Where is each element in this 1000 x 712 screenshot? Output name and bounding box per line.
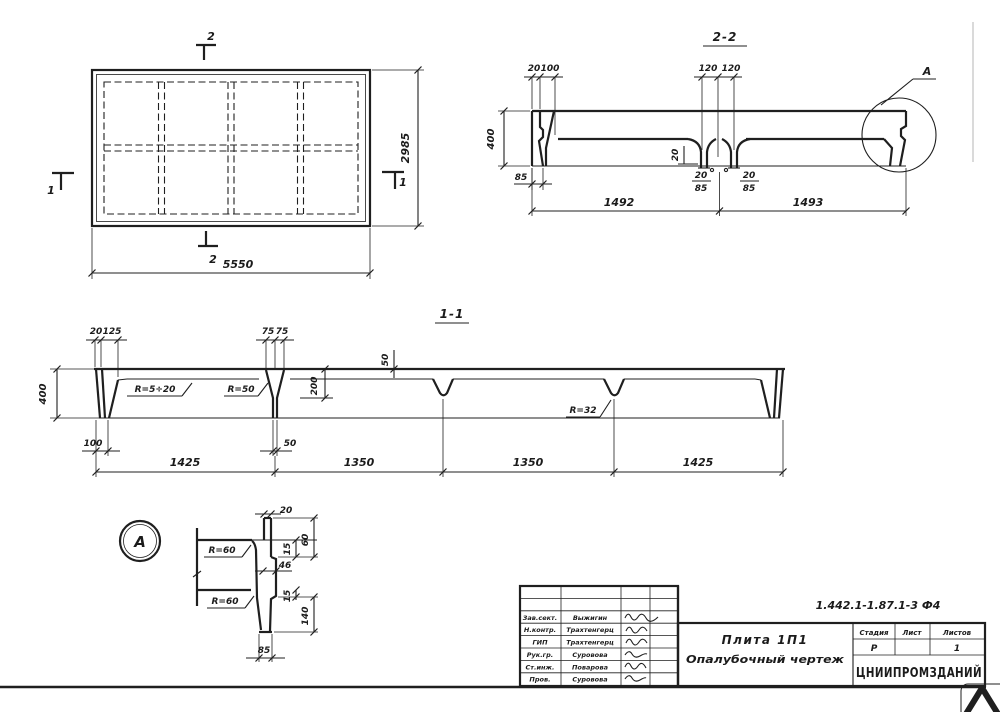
drawing-sheet: 2 2 1 1 5550: [0, 0, 1000, 712]
da-dim-85: 85: [246, 634, 285, 662]
da-dim-15a-label: 15: [283, 543, 293, 556]
signature-mark: [626, 627, 647, 633]
signature-mark: [625, 676, 646, 681]
s11-radius-1-label: R=5÷20: [135, 385, 176, 395]
organization-name: ЦНИИПРОМЗДАНИЙ: [856, 665, 982, 681]
signature-role: Ст.инж.: [526, 664, 555, 672]
s11-radius-1: R=5÷20: [127, 383, 192, 396]
stage-header: Стадия: [860, 629, 889, 637]
s11-dim-50-top: 50: [381, 350, 398, 378]
signature-mark: [625, 663, 646, 669]
signature-role: Пров.: [529, 676, 550, 684]
section-2-2-title: 2-2: [713, 30, 738, 44]
detail-a-callout: А: [862, 65, 936, 172]
s22-dim-note-20: 20: [671, 146, 698, 164]
s22-dim-20-label: 20: [528, 64, 541, 74]
s22-dims-20-100: 20 100: [524, 64, 563, 135]
document-code: 1.442.1-1.87.1-3 Ф4: [816, 599, 941, 612]
s22-dim-1492-label: 1492: [604, 196, 635, 209]
s11-dim-100-label: 100: [84, 439, 103, 449]
s22-foot-20-left: 20: [695, 171, 708, 181]
signature-name: Суровова: [572, 651, 607, 659]
s11-dim-50: 50: [260, 420, 296, 456]
detail-a-view: А 20 15: [120, 506, 318, 662]
signature-row: Рук.гр. Суровова: [527, 651, 647, 659]
da-dim-60-label: 60: [301, 534, 311, 547]
da-dim-20: 20: [255, 506, 292, 518]
s11-radius-3-label: R=32: [570, 406, 597, 416]
da-radius-1-label: R=60: [209, 546, 236, 556]
s11-dims-75-75: 75 75: [256, 327, 294, 368]
detail-a-label: А: [133, 533, 146, 551]
s11-dim-1350b-label: 1350: [513, 456, 544, 469]
s22-dims-1492-1493: 1492 1493: [529, 168, 910, 216]
da-dim-46-label: 46: [278, 561, 292, 571]
s22-foot-callout-left: 20 85: [692, 168, 714, 194]
s22-dim-400: 400: [486, 108, 530, 170]
da-dim-140-label: 140: [301, 607, 311, 626]
da-radius-2-label: R=60: [212, 597, 239, 607]
s11-dim-1425a-label: 1425: [170, 456, 201, 469]
section-2-2: 2-2 А 400: [486, 30, 936, 216]
s11-dim-400-label: 400: [38, 384, 49, 406]
s11-dim-50-top-label: 50: [381, 354, 391, 367]
signature-name: Трахтенгерц: [566, 626, 614, 634]
signature-row: Ст.инж. Поварова: [526, 663, 647, 671]
signature-role: Зав.сект.: [523, 614, 558, 622]
s22-dim-120a-label: 120: [699, 64, 718, 74]
s11-dim-125-label: 125: [103, 327, 122, 337]
signature-role: ГИП: [532, 639, 548, 647]
s11-dim-200-label: 200: [310, 377, 320, 396]
da-radius-1: R=60: [204, 545, 251, 557]
section-mark-2-bottom: 2: [198, 231, 218, 266]
s22-dim-100-label: 100: [541, 64, 560, 74]
product-title: Плита 1П1: [722, 633, 809, 647]
signature-name: Трахтенгерц: [566, 639, 614, 647]
s11-dim-75a-label: 75: [262, 327, 275, 337]
da-dim-15b-label: 15: [283, 590, 293, 603]
s22-foot-85-left: 85: [695, 184, 708, 194]
signature-mark: [625, 614, 658, 621]
signature-row: Н.контр. Трахтенгерц: [524, 626, 647, 634]
s22-dim-note-20-label: 20: [671, 149, 681, 162]
sheets-header: Листов: [942, 629, 972, 637]
sheet-header: Лист: [902, 629, 923, 637]
da-dim-20-label: 20: [280, 506, 293, 516]
plan-view: 2 2 1 1 5550: [47, 30, 424, 279]
section-mark-1-right: 1: [382, 172, 407, 189]
drawing-type: Опалубочный чертеж: [686, 654, 845, 666]
signature-name: Выжигин: [573, 614, 608, 622]
section-mark-1-left-label: 1: [47, 184, 55, 197]
stage-value: Р: [871, 644, 878, 654]
section-1-1: 1-1 20: [38, 307, 787, 477]
s11-dim-100: 100: [82, 420, 120, 456]
signature-name: Поварова: [572, 664, 608, 672]
detail-a-callout-label: А: [922, 65, 932, 78]
s11-dim-200: 200: [300, 366, 333, 402]
s11-radius-2: R=50: [224, 383, 268, 396]
s22-dim-85-label: 85: [515, 173, 528, 183]
s11-dim-20-label: 20: [90, 327, 103, 337]
s22-dim-85: 85: [514, 168, 552, 190]
da-radius-2: R=60: [207, 596, 254, 608]
title-block: Зав.сект. Выжигин Н.контр. Трахтенгерц Г…: [520, 586, 985, 686]
s11-main-dims: 1425 1350 1350 1425: [93, 399, 787, 477]
s22-foot-85-right: 85: [743, 184, 756, 194]
s11-dim-400: 400: [38, 366, 99, 422]
signature-row: ГИП Трахтенгерц: [532, 639, 647, 647]
s11-dim-50-label: 50: [284, 439, 297, 449]
plan-width-label: 5550: [223, 258, 254, 271]
signature-row: Зав.сект. Выжигин: [523, 614, 658, 622]
s22-foot-callout-right: 20 85: [724, 168, 759, 194]
signature-name: Суровова: [572, 676, 607, 684]
s22-foot-20-right: 20: [743, 171, 756, 181]
s11-dim-75b-label: 75: [276, 327, 289, 337]
section-mark-2-bottom-label: 2: [209, 253, 217, 266]
signature-role: Н.контр.: [524, 626, 556, 634]
signature-role: Рук.гр.: [527, 651, 553, 659]
section-mark-1-right-label: 1: [399, 176, 407, 189]
s22-dim-1493-label: 1493: [793, 196, 824, 209]
section-mark-1-left: 1: [47, 173, 74, 197]
plan-width-dimension: 5550: [89, 228, 374, 279]
s11-dim-1350a-label: 1350: [344, 456, 375, 469]
section-mark-2-top-label: 2: [207, 30, 215, 43]
s11-radius-3: R=32: [566, 400, 611, 417]
section-1-1-title: 1-1: [440, 307, 465, 321]
sheet-frame: [0, 22, 986, 687]
s22-dim-400-label: 400: [486, 129, 497, 151]
plan-height-label: 2985: [399, 132, 412, 163]
signature-mark: [625, 652, 647, 657]
da-dim-85-label: 85: [258, 646, 271, 656]
s11-dim-1425b-label: 1425: [683, 456, 714, 469]
section-mark-2-top: 2: [196, 30, 216, 60]
signature-row: Пров. Суровова: [529, 676, 646, 684]
s11-radius-2-label: R=50: [228, 385, 255, 395]
plan-height-dimension: 2985: [372, 67, 424, 230]
sheets-value: 1: [954, 644, 960, 654]
s22-dim-120b-label: 120: [722, 64, 741, 74]
signature-mark: [626, 639, 647, 645]
